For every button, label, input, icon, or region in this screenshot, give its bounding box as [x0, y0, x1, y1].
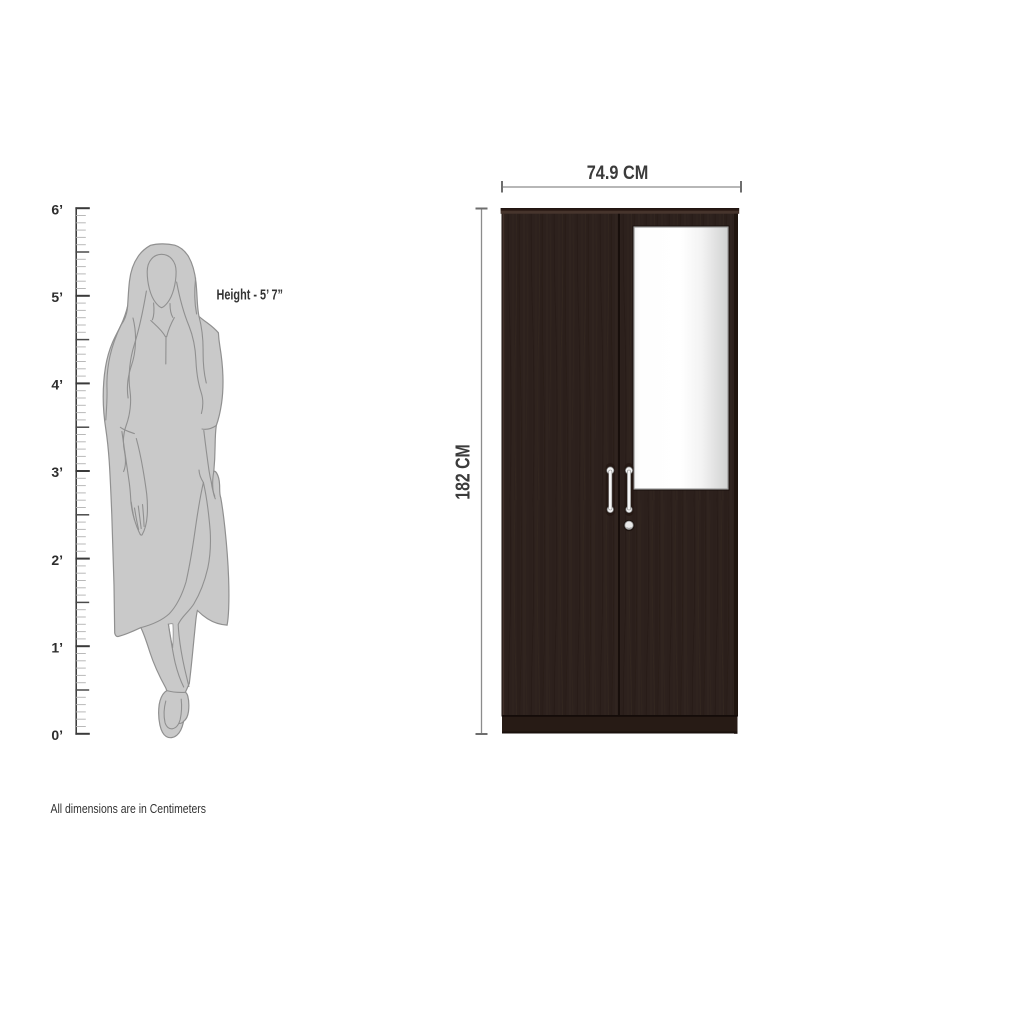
svg-text:6’: 6’ [51, 201, 63, 217]
svg-text:182 CM: 182 CM [453, 444, 475, 500]
svg-text:0’: 0’ [51, 727, 63, 743]
svg-text:2’: 2’ [51, 552, 63, 568]
svg-text:4’: 4’ [51, 377, 63, 393]
svg-text:Height - 5’ 7”: Height - 5’ 7” [217, 286, 284, 303]
svg-text:All dimensions are in Centimet: All dimensions are in Centimeters [51, 801, 207, 816]
svg-text:74.9 CM: 74.9 CM [587, 163, 649, 184]
svg-text:3’: 3’ [51, 464, 63, 480]
svg-text:1’: 1’ [51, 639, 63, 655]
svg-text:5’: 5’ [51, 289, 63, 305]
